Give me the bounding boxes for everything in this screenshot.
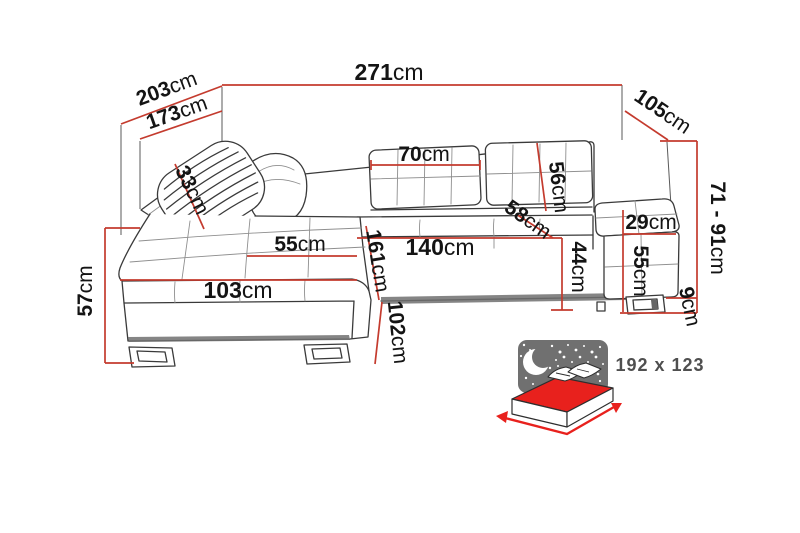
label-total-width: 271cm [354, 59, 423, 85]
label-armrest-height: 55cm [629, 245, 652, 296]
label-back-cushion-width: 70cm [398, 143, 449, 166]
sofa-dimension-diagram: 271cm 203cm 173cm 105cm 33cm 70cm 56cm 5… [0, 0, 800, 533]
label-seat-width: 140cm [405, 234, 474, 260]
label-adjustable-back-height: 71 - 91cm [706, 181, 729, 274]
label-seat-front-height: 44cm [567, 241, 590, 292]
label-seat-depth: 55cm [274, 233, 325, 256]
label-chaise-base-depth: 102cm [383, 300, 412, 365]
label-side-depth: 105cm [630, 84, 695, 138]
dim-line-chaise-base-depth [375, 302, 382, 364]
sleeping-function-icon: 192 x 123 [496, 340, 705, 434]
diagram-svg: 271cm 203cm 173cm 105cm 33cm 70cm 56cm 5… [0, 0, 800, 533]
label-chaise-side-height: 57cm [74, 265, 97, 316]
sleeping-dimensions-label: 192 x 123 [615, 355, 704, 375]
label-armrest-width: 29cm [625, 211, 676, 234]
label-leg-height: 9cm [674, 285, 705, 329]
label-chaise-front-width: 103cm [203, 277, 272, 303]
